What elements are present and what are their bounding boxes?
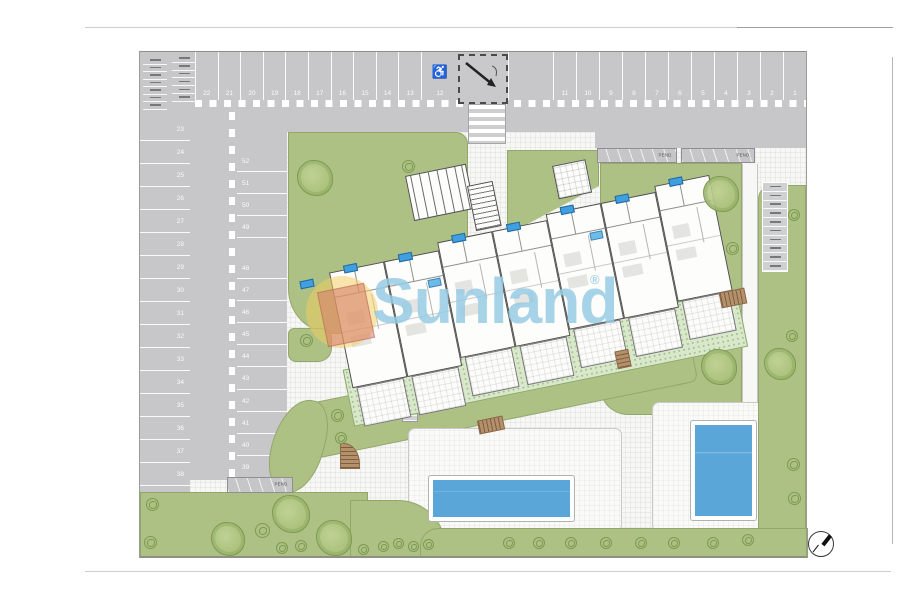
parking-stall: 33 [140,348,190,371]
parking-stall-number: 46 [242,309,249,316]
moto-slot [763,209,787,218]
parking-stall-number: 15 [354,90,376,97]
bush-icon [295,540,307,552]
parking-stall: 10 [576,52,599,100]
moto-symbol [770,247,781,249]
ramp-southwest: PEND. [227,477,293,493]
bush-icon [423,539,434,550]
parking-stall: 11 [553,52,576,100]
parking-stall-number: 13 [399,90,421,97]
parking-stall-number: 12 [422,90,458,97]
bush-icon [742,534,754,546]
parking-stall: 18 [285,52,308,100]
ramp-pergola-1: PEND. [597,148,677,163]
parking-stall: 1 [783,52,806,100]
bush-icon [144,536,157,549]
parking-stall-number: 51 [242,180,249,187]
parking-stall-number: 52 [242,158,249,165]
moto-symbol [770,212,781,214]
parking-stall: 21 [218,52,241,100]
moto-symbol [150,82,161,84]
bush-icon [146,498,159,511]
parking-stall-number: 49 [242,224,249,231]
bush-icon [276,542,288,554]
ramp-label: PEND. [659,153,673,157]
moto-slot [172,71,196,79]
site-boundary-right [806,51,807,558]
tree-icon [764,348,796,380]
parking-stall-number: 37 [177,448,184,455]
moto-slot [143,95,167,103]
parking-stall-number: 2 [761,90,783,97]
parking-stall: 38 [140,463,190,486]
parking-stall-number: 26 [177,195,184,202]
ramp-arrow-icon [460,56,506,102]
bush-icon [408,541,419,552]
parking-stall: 32 [140,325,190,348]
bush-icon [393,538,404,549]
moto-slot [143,65,167,73]
parking-stall-number: 44 [242,353,249,360]
tree-icon [211,522,245,556]
parking-stall-number: 38 [177,471,184,478]
parking-stall: 8 [622,52,645,100]
moto-slot [763,245,787,254]
moto-symbol [770,265,781,267]
parking-stall: 43 [237,367,287,389]
road-centerline [229,112,235,478]
parking-stall: 47 [237,279,287,301]
parking-stall: 29 [140,256,190,279]
moto-slot [143,80,167,88]
parking-stall: 2 [760,52,783,100]
parking-stall-number: 28 [177,241,184,248]
moto-slot [172,55,196,63]
parking-stall: 20 [240,52,263,100]
parking-stall-number: 43 [242,375,249,382]
parking-stall-number: 6 [669,90,691,97]
moto-slot [143,72,167,80]
parking-stall: 37 [140,440,190,463]
moto-symbol [770,256,781,258]
parking-stall: 52 [237,150,287,172]
parking-stall: 24 [140,141,190,164]
bush-icon [331,409,344,422]
moto-symbol [770,239,781,241]
top-road-right-extension [595,132,806,148]
parking-stall-number: 23 [177,126,184,133]
parking-stall: 19 [263,52,286,100]
parking-stall-number: 34 [177,379,184,386]
parking-stall: 5 [691,52,714,100]
bush-icon [600,537,612,549]
bush-icon [726,242,739,255]
bush-icon [378,541,389,552]
parking-stall: 34 [140,371,190,394]
frame-line-top-left [85,27,737,28]
moto-symbol [179,65,190,67]
parking-stall-number: 25 [177,172,184,179]
moto-slot [763,227,787,236]
parking-stall: 49 [237,216,287,238]
handicap-parking-stall: ♿12 [421,52,458,100]
parking-stall-number: 21 [219,90,241,97]
moto-slot [143,87,167,95]
moto-slot [763,253,787,262]
parking-stall-number: 17 [309,90,331,97]
bush-icon [788,492,801,505]
ramp-label: PEND. [737,153,751,157]
moto-symbol [150,74,161,76]
parking-stall: 15 [353,52,376,100]
parking-stall-number: 32 [177,333,184,340]
left-outer-parking-column: 23242526272829303132333435363738 [140,118,190,486]
moto-parking-column-1 [143,57,167,110]
stair-core-block [552,159,592,199]
bush-icon [300,334,313,347]
parking-stall: 45 [237,323,287,345]
parking-stall: 46 [237,301,287,323]
moto-symbol [179,73,190,75]
moto-slot [763,192,787,201]
site-boundary-bottom [140,556,807,558]
moto-slot [172,94,196,102]
parking-stall: 36 [140,417,190,440]
moto-symbol [179,96,190,98]
parking-stall [508,52,553,100]
site-plan-canvas: 22212019181716151413♿121110987654321 232… [0,0,900,600]
parking-stall-number: 31 [177,310,184,317]
parking-stall: 35 [140,394,190,417]
tree-icon [272,495,310,533]
parking-stall: 3 [737,52,760,100]
bush-icon [787,458,800,471]
bush-icon [533,537,545,549]
swimming-pool-west [429,476,574,521]
parking-stall-number: 24 [177,149,184,156]
pedestrian-crosswalk [468,104,506,144]
parking-stall-number: 10 [577,90,599,97]
moto-parking-column-2 [172,55,196,102]
left-inner-parking-column-upper: 52515049 [237,150,287,238]
parking-stall: 14 [376,52,399,100]
parking-stall: 25 [140,164,190,187]
parking-stall: 7 [645,52,668,100]
moto-symbol [770,221,781,223]
moto-symbol [150,59,161,61]
tree-icon [701,349,737,385]
parking-stall: 30 [140,279,190,302]
parking-stall: 42 [237,390,287,412]
parking-stall-number: 50 [242,202,249,209]
parking-stall-number: 30 [177,287,184,294]
moto-symbol [150,89,161,91]
bush-icon [635,537,647,549]
moto-symbol [770,186,781,188]
parking-stall-number: 48 [242,265,249,272]
parking-stall-number: 22 [196,90,218,97]
ramp-label: PEND. [275,483,289,487]
moto-symbol [150,97,161,99]
bush-icon [707,537,719,549]
bush-icon [335,432,347,444]
parking-stall-number: 16 [332,90,354,97]
parking-stall-number: 8 [623,90,645,97]
parking-stall: 28 [140,233,190,256]
parking-stall-number: 18 [286,90,308,97]
parking-stall: 22 [195,52,218,100]
moto-symbol [770,203,781,205]
parking-stall: 16 [331,52,354,100]
parking-stall-number: 42 [242,398,249,405]
moto-symbol [150,67,161,69]
parking-stall-number: 7 [646,90,668,97]
rooftop-unit-marker [589,230,603,240]
tree-icon [297,160,333,196]
moto-symbol [150,104,161,106]
frame-line-bottom [85,571,891,572]
bush-icon [786,330,798,342]
parking-stall: 44 [237,345,287,367]
frame-line-right [892,57,893,544]
parking-stall-number: 45 [242,331,249,338]
parking-stall: 27 [140,210,190,233]
top-parking-row: 22212019181716151413♿121110987654321 [195,52,806,100]
parking-stall-number: 11 [554,90,576,97]
parking-stall-number: 3 [738,90,760,97]
parking-stall-number: 41 [242,420,249,427]
parking-stall-number: 35 [177,402,184,409]
site-boundary-left [139,51,140,558]
parking-stall-number: 19 [264,90,286,97]
moto-symbol [770,230,781,232]
swimming-pool-east [691,421,756,520]
parking-stall: 51 [237,172,287,194]
parking-stall: 17 [308,52,331,100]
bush-icon [565,537,577,549]
tree-icon [316,520,352,556]
moto-slot [143,102,167,110]
parking-stall-number: 36 [177,425,184,432]
parking-stall: 4 [714,52,737,100]
wheelchair-icon: ♿ [422,64,458,80]
moto-slot [763,201,787,210]
parking-stall-number: 20 [241,90,263,97]
parking-stall: 9 [599,52,622,100]
tree-icon [703,176,739,212]
moto-slot [763,262,787,271]
site-boundary-top [139,51,807,52]
bush-icon [255,523,270,538]
parking-stall-number: 1 [784,90,806,97]
moto-slot [172,86,196,94]
parking-stall-number: 5 [692,90,714,97]
rooftop-unit-marker [427,278,441,288]
parking-stall-number: 29 [177,264,184,271]
moto-symbol [179,89,190,91]
moto-slot [172,63,196,71]
moto-slot [763,218,787,227]
moto-slot [172,78,196,86]
moto-slot [143,57,167,65]
parking-stall: 48 [237,257,287,279]
parking-stall-number: 33 [177,356,184,363]
parking-stall-number: 27 [177,218,184,225]
parking-stall: 6 [668,52,691,100]
parking-stall-number: 9 [600,90,622,97]
bush-icon [402,160,415,173]
bush-icon [358,544,369,555]
parking-stall: 31 [140,302,190,325]
moto-symbol [179,81,190,83]
parking-stall-number: 40 [242,442,249,449]
parking-stall: 26 [140,187,190,210]
moto-slot [763,183,787,192]
parking-stall-number: 14 [377,90,399,97]
moto-slot [763,236,787,245]
parking-stall-number: 47 [242,287,249,294]
parking-stall-number: 39 [242,464,249,471]
parking-stall: 50 [237,194,287,216]
bush-icon [503,537,515,549]
parking-stall: 13 [398,52,421,100]
parking-stall-number: 4 [715,90,737,97]
parking-stall: 23 [140,118,190,141]
bush-icon [668,537,680,549]
underground-ramp-structure [458,54,508,104]
moto-symbol [179,57,190,59]
north-arrow-icon [808,531,834,557]
bush-icon [788,209,800,221]
moto-symbol [770,195,781,197]
frame-line-top-right [737,27,893,28]
bike-rack-column [762,182,788,272]
ramp-pergola-2: PEND. [681,148,755,163]
